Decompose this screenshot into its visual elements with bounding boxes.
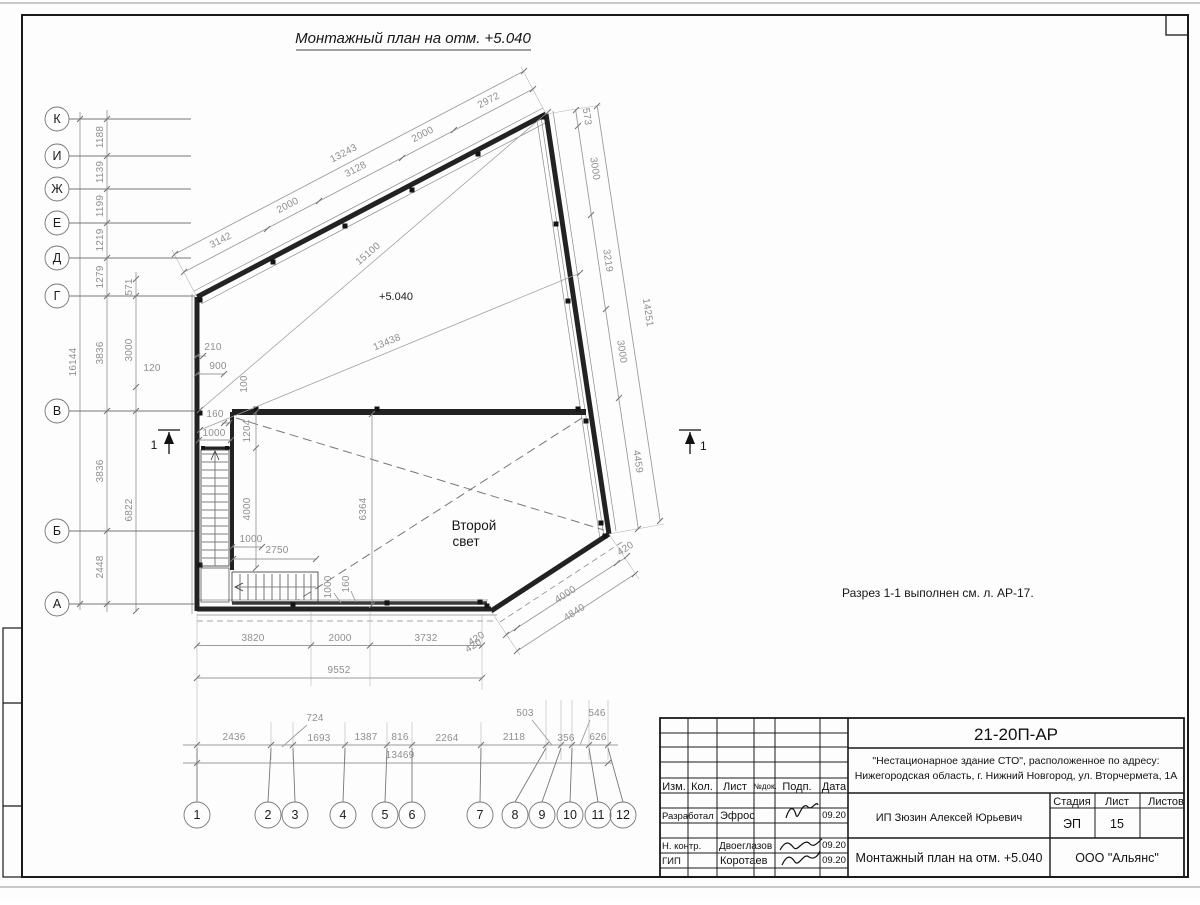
col-axis-label: 8 [512, 808, 519, 822]
date-gip: 09.20 [822, 855, 846, 866]
date-developed: 09.20 [822, 810, 846, 821]
dim-grid-seg: 626 [589, 732, 607, 743]
row-axis-label: Д [53, 251, 62, 265]
dim-stair: 1000 [323, 575, 334, 598]
col-axis-label: 11 [592, 808, 605, 822]
dim-stair: 4000 [242, 497, 253, 520]
corner-box [1166, 15, 1188, 35]
dim-row-total: 16144 [68, 347, 79, 376]
dim-grid-seg: 2436 [222, 732, 245, 743]
dim-grid-seg: 1387 [354, 732, 377, 743]
client-name: ИП Зюзин Алексей Юрьевич [876, 812, 1023, 824]
col-axis-label: 10 [563, 808, 577, 822]
sheet-header: Лист [1105, 796, 1129, 808]
sheet-number-value: 15 [1110, 817, 1124, 831]
project-address-line1: "Нестационарное здание СТО", расположенн… [872, 755, 1159, 767]
dim-stair: 160 [341, 575, 352, 593]
dim-stair: 160 [206, 409, 224, 420]
col-axis-label: 2 [265, 808, 272, 822]
date-ncontrol: 09.20 [822, 840, 846, 851]
col-axis-label: 4 [340, 808, 347, 822]
dim-grid-total: 13469 [386, 750, 415, 761]
row-axis-label: В [53, 404, 61, 418]
dim-grid-seg: 1693 [307, 733, 330, 744]
wall-top-sloped [197, 114, 546, 297]
signature-developed [786, 804, 818, 818]
title-block-text: 21-20П-АР "Нестационарное здание СТО", р… [662, 725, 1184, 867]
section-number-left: 1 [151, 438, 158, 452]
dim-right-seg: 3219 [600, 248, 614, 273]
col-axis-label: 5 [382, 808, 389, 822]
section-mark-left [158, 430, 180, 454]
stage-value: ЭП [1063, 817, 1081, 831]
dim-bottom-total: 9552 [327, 665, 350, 676]
project-address-line2: Нижегородская область, г. Нижний Новгоро… [855, 770, 1178, 782]
col-header-list: Лист [723, 781, 747, 793]
col-header-kol: Кол. [691, 781, 713, 793]
dim-col2: 3000 [124, 338, 135, 361]
diagonal-dim-lines [200, 112, 580, 430]
room-label-line2: свет [452, 534, 479, 549]
dim-grid-seg: 816 [391, 732, 409, 743]
col-axis-label: 3 [292, 808, 299, 822]
dim-chamfer-seg: 4000 [553, 584, 579, 606]
row-axis-label: Г [54, 289, 61, 303]
col-header-izm: Изм. [662, 781, 686, 793]
dim-grid-seg: 2118 [503, 732, 526, 743]
col-header-data: Дата [822, 781, 847, 793]
dim-row-spacing: 2448 [95, 555, 106, 578]
dim-stair: 1000 [202, 428, 225, 439]
room-label-line1: Второй [452, 518, 497, 533]
dim-col2: 120 [143, 363, 161, 374]
dim-bottom-seg: 3732 [414, 633, 437, 644]
dim-row-spacing: 1219 [95, 228, 106, 251]
dim-chamfer-total: 4840 [562, 602, 588, 624]
dim-top-total: 13243 [329, 142, 360, 165]
elevation-mark: +5.040 [371, 288, 421, 303]
role-gip: ГИП [662, 856, 681, 867]
dim-row-spacing: 3836 [95, 341, 106, 364]
dim-top-seg: 2972 [476, 90, 502, 111]
dim-grid-seg: 2264 [435, 733, 458, 744]
dim-stair: 1000 [239, 534, 262, 545]
col-axis-numbers: 1 2 3 4 5 6 7 8 9 10 11 12 [194, 808, 630, 822]
dim-right-seg: 3000 [614, 339, 628, 364]
row-axis-label: Е [53, 216, 61, 230]
role-ncontrol: Н. контр. [662, 841, 701, 852]
role-developed: Разработал [662, 811, 714, 822]
left-margin-boxes [3, 628, 22, 877]
dim-row-spacing: 1188 [95, 126, 106, 149]
row-axis-label: К [53, 112, 61, 126]
dim-right-seg: 4459 [630, 449, 644, 474]
company-name: ООО "Альянс" [1075, 851, 1159, 865]
dim-grid-seg: 356 [557, 733, 575, 744]
elevation-label: +5.040 [379, 291, 413, 303]
section-mark-right [679, 430, 701, 454]
dim-right-total: 14251 [640, 298, 655, 328]
signatures [780, 804, 822, 865]
dim-bottom-seg: 3820 [241, 633, 264, 644]
name-developed: Эфрос [720, 810, 755, 822]
dim-grid-seg: 546 [588, 708, 606, 719]
dim-row-spacing: 1199 [95, 195, 106, 218]
dim-stair: 2750 [265, 545, 288, 556]
dim-room-height: 6364 [358, 497, 369, 520]
dim-diag-top: 15100 [354, 240, 383, 267]
stair-vertical-flight [201, 450, 229, 566]
dim-stair: 100 [239, 375, 250, 393]
row-axis-label: А [53, 597, 62, 611]
dim-diag-mid: 13438 [372, 332, 403, 353]
col-axis-label: 6 [409, 808, 416, 822]
name-ncontrol: Двоеглазов [719, 841, 772, 852]
plan-canvas: Монтажный план на отм. +5.040 [0, 0, 1200, 900]
stair-lower-flight [232, 572, 318, 602]
dim-row-spacing: 1139 [95, 161, 106, 184]
col-header-podp: Подп. [782, 781, 811, 793]
stair-landing [201, 568, 229, 602]
drawing-title: Монтажный план на отм. +5.040 [856, 851, 1043, 865]
col-axis-label: 9 [539, 808, 546, 822]
dim-labels: 1188 1139 1199 1219 1279 3836 3836 2448 … [68, 90, 655, 761]
row-axis-label: Ж [51, 182, 63, 196]
dim-grid-seg: 503 [516, 708, 534, 719]
dim-col2: 571 [124, 278, 135, 296]
dim-right-seg: 573 [580, 107, 593, 126]
col-axis-label: 12 [616, 808, 630, 822]
dim-stair: 210 [204, 342, 222, 353]
col-header-ndok: №док. [753, 782, 776, 791]
doc-number: 21-20П-АР [974, 725, 1058, 744]
dim-chamfer-seg: 420 [615, 539, 636, 558]
dim-row-spacing: 3836 [95, 459, 106, 482]
dim-row-spacing: 1279 [95, 265, 106, 288]
dim-grid-seg: 724 [306, 713, 324, 724]
name-gip: Коротаев [720, 855, 768, 867]
col-axis-label: 1 [194, 808, 201, 822]
signature-ncontrol [780, 839, 822, 850]
row-axis-label: Б [53, 524, 61, 538]
row-axis-label: И [53, 149, 62, 163]
row-axis-letters: К И Ж Е Д Г В Б А [51, 112, 63, 611]
stage-header: Стадия [1053, 796, 1091, 808]
wall-chamfer [491, 534, 609, 611]
section-note: Разрез 1-1 выполнен см. л. АР-17. [842, 586, 1034, 600]
dim-col2: 6822 [124, 498, 135, 521]
sheets-header: Листов [1148, 796, 1184, 808]
sheet-title: Монтажный план на отм. +5.040 [295, 30, 531, 47]
dim-bottom-seg: 2000 [328, 633, 351, 644]
dim-stair: 1204 [242, 419, 253, 442]
section-number-right: 1 [700, 439, 707, 453]
col-axis-label: 7 [477, 808, 484, 822]
dim-right-seg: 3000 [587, 156, 601, 181]
dim-stair: 900 [209, 361, 227, 372]
drawing-sheet: Монтажный план на отм. +5.040 [0, 0, 1200, 900]
